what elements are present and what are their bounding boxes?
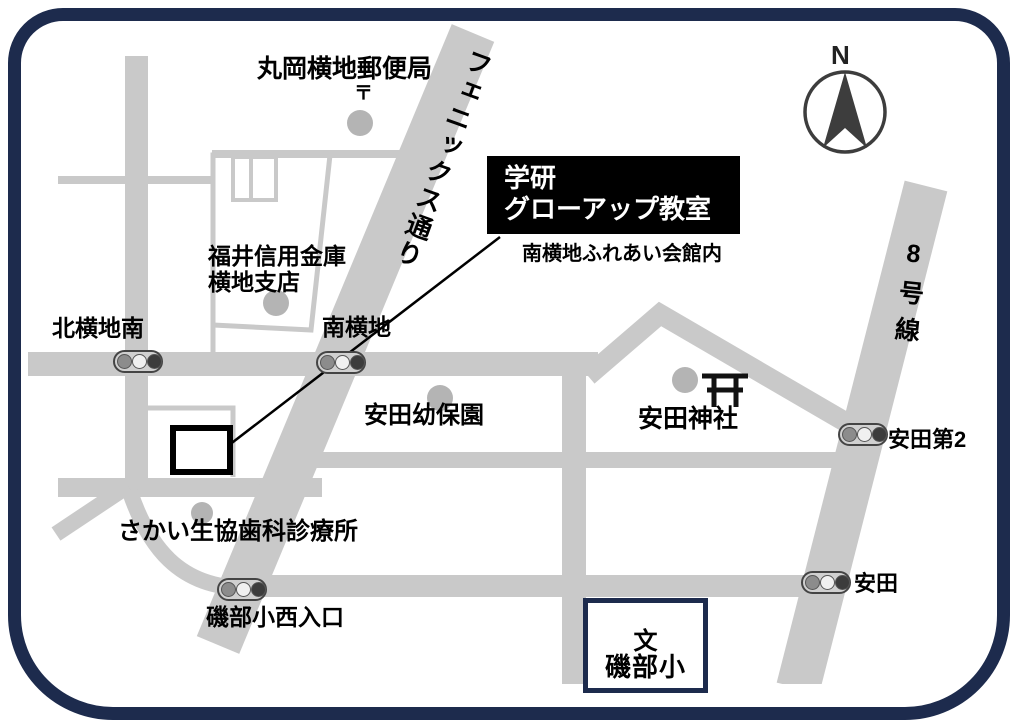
intersection-label-yasuda: 安田 (854, 572, 898, 596)
post-office-dot (347, 110, 373, 136)
signal-lamp-icon (132, 354, 147, 369)
traffic-signal-yasuda-dai2 (838, 423, 888, 446)
signal-lamp-icon (236, 582, 251, 597)
destination-building-label: 南横地ふれあい会館内 (522, 244, 722, 266)
signal-lamp-icon (820, 575, 835, 590)
signal-lamp-icon (835, 575, 850, 590)
intersection-label-minami-yokoji: 南横地 (322, 315, 391, 340)
dental-label: さかい生協歯科診療所 (118, 519, 358, 545)
traffic-signal-isobe-shonishi (217, 578, 267, 601)
traffic-signal-yasuda (801, 571, 851, 594)
bank-label-line1: 福井信用金庫 (208, 243, 346, 269)
post-office-label: 丸岡横地郵便局 (257, 56, 432, 83)
signal-lamp-icon (147, 354, 162, 369)
small-building-outline-1 (233, 157, 251, 200)
intersection-label-isobe-shonishi: 磯部小西入口 (206, 605, 344, 630)
kindergarten-label: 安田幼保園 (364, 403, 484, 429)
signal-lamp-icon (842, 427, 857, 442)
traffic-signal-kitayokoji-minami (113, 350, 163, 373)
intersection-label-kitayokoji-minami: 北横地南 (52, 316, 144, 341)
destination-building-marker (173, 428, 230, 472)
shrine-dot (672, 367, 698, 393)
signal-lamp-icon (857, 427, 872, 442)
destination-title-box: 学研 グローアップ教室 (487, 156, 740, 234)
signal-lamp-icon (117, 354, 132, 369)
school-box: 文 磯部小 (583, 598, 708, 693)
small-building-outline-2 (251, 157, 276, 200)
signal-lamp-icon (335, 355, 350, 370)
compass-icon (805, 72, 885, 152)
signal-lamp-icon (320, 355, 335, 370)
destination-name-line2: グローアップ教室 (504, 194, 740, 225)
torii-gate-icon (702, 374, 748, 407)
destination-name-line1: 学研 (504, 163, 740, 194)
signal-lamp-icon (251, 582, 266, 597)
bank-label: 福井信用金庫 横地支店 (208, 243, 346, 295)
intersection-label-yasuda-dai2: 安田第2 (888, 428, 966, 452)
signal-lamp-icon (350, 355, 365, 370)
signal-lamp-icon (221, 582, 236, 597)
signal-lamp-icon (872, 427, 887, 442)
traffic-signal-minami-yokoji (316, 351, 366, 374)
postal-mark: 〒 (354, 84, 373, 105)
road-south-horizontal (222, 575, 838, 597)
shrine-label: 安田神社 (638, 406, 738, 433)
compass-north-label: N (831, 40, 850, 71)
bank-label-line2: 横地支店 (208, 269, 346, 295)
signal-lamp-icon (805, 575, 820, 590)
school-label: 磯部小 (588, 647, 703, 684)
road-west-vertical (125, 56, 148, 492)
